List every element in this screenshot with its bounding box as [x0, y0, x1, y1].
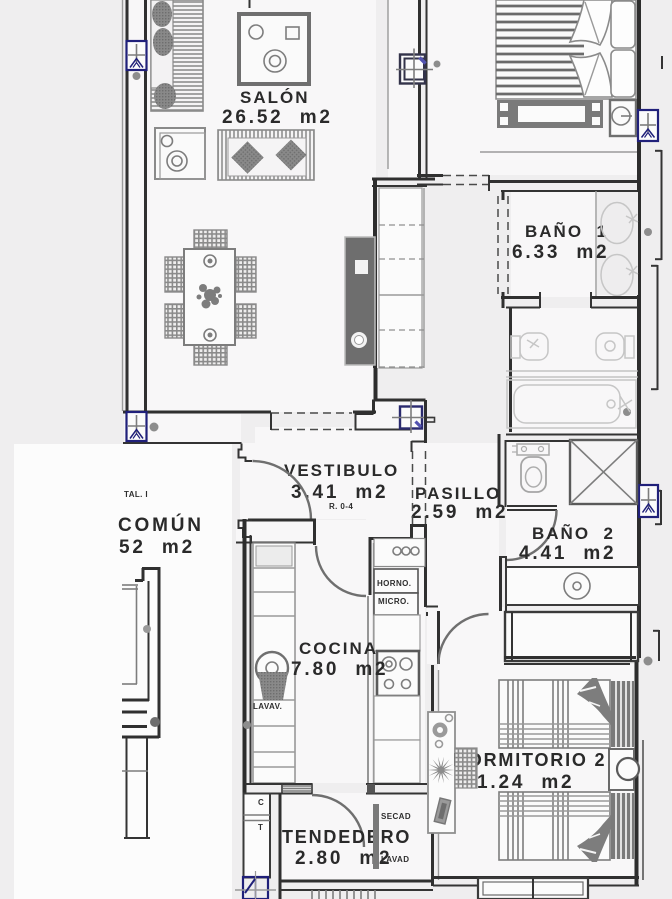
svg-text:HORNO.: HORNO.	[377, 579, 411, 588]
svg-text:LAVAD: LAVAD	[381, 855, 409, 864]
svg-text:BAÑO 2: BAÑO 2	[532, 523, 615, 543]
svg-text:LAVAV.: LAVAV.	[253, 702, 282, 711]
svg-text:SALÓN: SALÓN	[240, 88, 310, 107]
svg-text:4.41 m2: 4.41 m2	[519, 543, 616, 564]
svg-text:VESTIBULO: VESTIBULO	[284, 461, 399, 480]
svg-text:1.24 m2: 1.24 m2	[477, 772, 574, 793]
svg-text:26.52 m2: 26.52 m2	[222, 107, 333, 128]
svg-text:COMÚN: COMÚN	[118, 514, 204, 536]
svg-text:T: T	[258, 823, 263, 832]
svg-text:SECAD: SECAD	[381, 812, 411, 821]
svg-text:TAL. I: TAL. I	[124, 490, 148, 499]
svg-text:R. 0-4: R. 0-4	[329, 502, 353, 511]
svg-text:PASILLO: PASILLO	[415, 484, 501, 503]
svg-text:COCINA: COCINA	[299, 639, 378, 658]
svg-text:C: C	[258, 798, 264, 807]
svg-text:7.80 m2: 7.80 m2	[291, 659, 388, 680]
svg-text:MICRO.: MICRO.	[378, 597, 409, 606]
svg-text:TENDEDERO: TENDEDERO	[282, 827, 411, 847]
svg-text:52 m2: 52 m2	[119, 537, 195, 558]
svg-text:BAÑO 1: BAÑO 1	[525, 221, 608, 241]
svg-text:6.33 m2: 6.33 m2	[512, 242, 609, 263]
